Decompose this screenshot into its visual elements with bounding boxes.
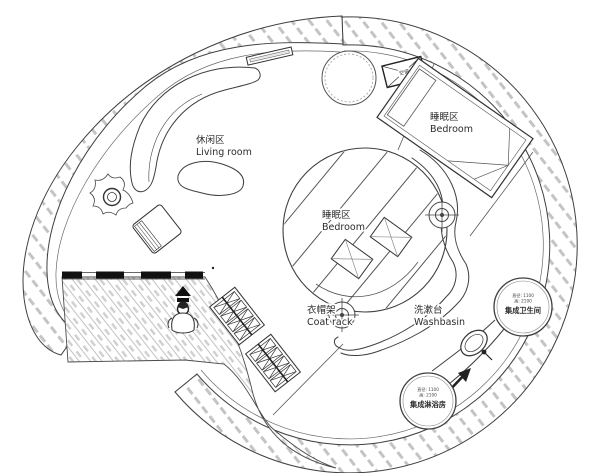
- living-room-label-zh: 休闲区: [196, 134, 225, 146]
- wall-segment: [141, 272, 171, 279]
- shower-pod: 直径: 1100 高: 2100 集成淋浴房: [400, 373, 456, 429]
- toilet-pod-name: 集成卫生间: [504, 306, 541, 315]
- toilet-pod: 直径: 1100 高: 2100 集成卫生间: [494, 278, 552, 336]
- coat-rack-label-en: Coat rack: [307, 317, 353, 328]
- bedroom-upper-label-zh: 睡眠区: [430, 111, 459, 123]
- living-room-label: 休闲区 Living room: [196, 134, 252, 158]
- floor-plan-canvas: 空调: [0, 0, 611, 473]
- potted-plant: [90, 174, 133, 215]
- wall-segment: [185, 272, 203, 279]
- washbasin-label: 洗漱台 Washbasin: [414, 304, 465, 328]
- shower-pod-spec2: 高: 2100: [419, 392, 437, 399]
- shower-pod-name: 集成淋浴房: [409, 400, 446, 409]
- washbasin-label-en: Washbasin: [414, 317, 465, 328]
- shower-pod-spec1: 直径: 1100: [417, 386, 439, 392]
- plan-dot: [212, 267, 214, 269]
- wall-shelf: [246, 47, 293, 65]
- toilet-pod-spec2: 高: 2100: [514, 298, 532, 305]
- bedroom-center-label-en: Bedroom: [322, 222, 365, 233]
- coat-rack-unit: [246, 334, 301, 392]
- lounge-chair: [132, 204, 183, 255]
- wall-segment: [96, 272, 124, 279]
- bedroom-upper-label-en: Bedroom: [430, 124, 473, 135]
- coffee-table: [178, 161, 244, 195]
- floor-plan-drawing: 空调: [0, 0, 611, 473]
- sink-icon: [456, 325, 492, 361]
- living-room-label-en: Living room: [196, 147, 252, 158]
- toilet-pod-spec1: 直径: 1100: [512, 292, 534, 298]
- wall-segment: [62, 272, 82, 279]
- coat-rack-label-zh: 衣帽架: [307, 304, 336, 316]
- washbasin-label-zh: 洗漱台: [414, 304, 443, 316]
- round-table: [322, 51, 376, 105]
- bedroom-center-label-zh: 睡眠区: [322, 209, 351, 221]
